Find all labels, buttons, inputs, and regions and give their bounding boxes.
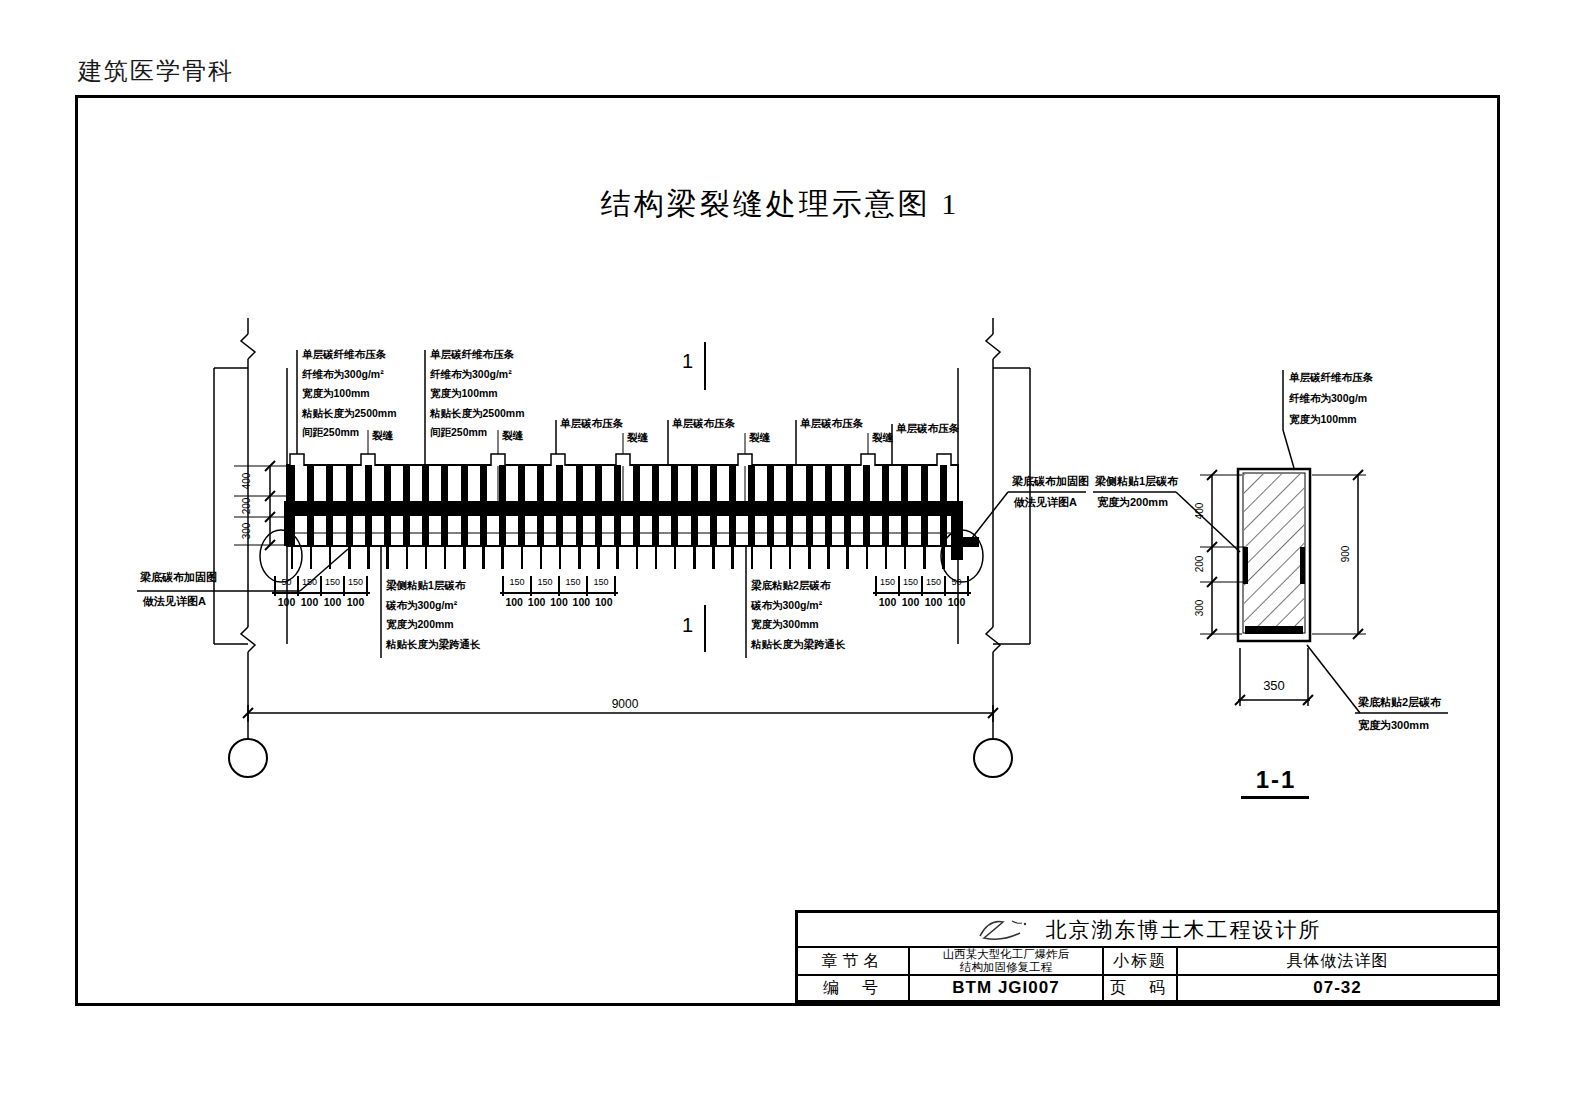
note-line: 粘贴长度为梁跨通长 (751, 635, 846, 655)
strip-tail-tick (616, 546, 619, 569)
section-bottom-note-line1: 梁底粘贴2层碳布 (1358, 695, 1441, 710)
strip-label-3: 单层碳布压条 (800, 417, 863, 431)
dim-value-bottom: 100 (321, 596, 344, 608)
note-line: 纤维布为300g/m² (430, 365, 525, 385)
subtitle-value: 具体做法详图 (1178, 948, 1497, 974)
page-value: 07-32 (1178, 976, 1497, 1000)
strip-tail-tick (751, 546, 754, 569)
note-line: 碳布为300g/m² (751, 596, 846, 616)
dim-group-3: 15015015050100100100100 (876, 576, 968, 618)
section-bottom-cloth (1245, 626, 1303, 634)
strip-tail-tick (923, 546, 926, 569)
strip-tail-tick (406, 546, 409, 569)
strip-tail-tick (808, 546, 811, 569)
dim-line (500, 592, 618, 594)
strip-tail-tick (789, 546, 792, 569)
elev-dim-span: 9000 (595, 697, 655, 711)
strip-label-4: 单层碳布压条 (896, 422, 959, 436)
strip-tail-tick (291, 546, 294, 569)
strip-tail-tick (674, 546, 677, 569)
strip-tail-tick (501, 546, 504, 569)
section-dim-350: 350 (1244, 678, 1304, 693)
detail-callout-right-line1: 梁底碳布加固图 (1012, 474, 1089, 489)
dim-value-bottom: 100 (298, 596, 321, 608)
note-line: 宽度为100mm (302, 384, 397, 404)
detail-callout-left-line2: 做法见详图A (143, 594, 206, 609)
dim-value-bottom: 100 (570, 596, 592, 608)
note-line: 粘贴长度为梁跨通长 (386, 635, 481, 655)
strip-tail-tick (444, 546, 447, 569)
side-callout-line2: 宽度为200mm (1097, 495, 1168, 510)
dim-value-bottom: 100 (503, 596, 525, 608)
strip-tail-tick (521, 546, 524, 569)
section-cut-label-top: 1 (682, 350, 693, 373)
strip-tail-tick (731, 546, 734, 569)
crack-label-3: 裂缝 (627, 431, 648, 445)
dim-value-bottom: 100 (548, 596, 570, 608)
section-dim-400: 400 (1194, 498, 1206, 524)
dim-value-top: 150 (298, 577, 321, 587)
page-label: 页 码 (1104, 976, 1178, 1000)
dim-value-top: 150 (559, 577, 587, 587)
elev-dim-200: 200 (241, 493, 253, 519)
title-block-row2: 章节名 山西某大型化工厂爆炸后 结构加固修复工程 小标题 具体做法详图 (798, 948, 1497, 976)
strip-label-2: 单层碳布压条 (672, 417, 735, 431)
note-line: 宽度为100mm (430, 384, 525, 404)
section-bottom-note-line2: 宽度为300mm (1358, 718, 1429, 733)
strip-tail-tick (597, 546, 600, 569)
note-line: 宽度为300mm (751, 615, 846, 635)
strip-tail-tick (866, 546, 869, 569)
section-side-cloth-left (1243, 547, 1248, 584)
note-line: 粘贴长度为2500mm (302, 404, 397, 424)
section-cut-label-bottom: 1 (682, 614, 693, 637)
dim-group-1: 50150150150100100100100 (275, 576, 367, 618)
strip-note-left: 单层碳纤维布压条纤维布为300g/m²宽度为100mm粘贴长度为2500mm间距… (302, 345, 397, 443)
dim-value-bottom: 100 (275, 596, 298, 608)
dim-value-top: 150 (899, 577, 922, 587)
strip-tail-tick (329, 546, 332, 569)
strip-tail-tick (827, 546, 830, 569)
section-hatch (1244, 474, 1304, 632)
beam-end-anchor-left (284, 501, 294, 546)
title-block: 北京渤东博土木工程设计所 章节名 山西某大型化工厂爆炸后 结构加固修复工程 小标… (795, 910, 1500, 1003)
strip-tail-tick (386, 546, 389, 569)
strip-tail-tick (348, 546, 351, 569)
detail-callout-right-line2: 做法见详图A (1014, 495, 1077, 510)
crack-label-5: 裂缝 (872, 431, 893, 445)
strip-tail-tick (425, 546, 428, 569)
strip-tail-tick (770, 546, 773, 569)
dim-value-bottom: 100 (899, 596, 922, 608)
crack-label-2: 裂缝 (502, 429, 523, 443)
strip-tail-tick (482, 546, 485, 569)
beam-end-anchor-right-foot (951, 537, 979, 547)
beam-end-anchor-right (951, 501, 963, 560)
section-dim-200: 200 (1194, 551, 1206, 577)
section-title: 1-1 (1243, 766, 1309, 794)
title-block-row3: 编 号 BTM JGI007 页 码 07-32 (798, 976, 1497, 1000)
note-line: 碳布为300g/m² (386, 596, 481, 616)
strip-tail-tick (310, 546, 313, 569)
strip-tail-tick (559, 546, 562, 569)
dim-value-bottom: 100 (344, 596, 367, 608)
crack-label-4: 裂缝 (749, 431, 770, 445)
strip-tail-tick (712, 546, 715, 569)
dim-value-top: 50 (275, 577, 298, 587)
dim-value-top: 150 (531, 577, 559, 587)
title-block-company-row: 北京渤东博土木工程设计所 (798, 913, 1497, 948)
strip-tail-tick (846, 546, 849, 569)
company-logo-icon (974, 915, 1032, 945)
note-line: 纤维布为300g/m² (302, 365, 397, 385)
chapter-label: 章节名 (798, 948, 910, 974)
strip-tail-tick (693, 546, 696, 569)
strip-tail-tick (885, 546, 888, 569)
project-line2: 结构加固修复工程 (960, 961, 1052, 974)
note-line: 梁底粘贴2层碳布 (751, 576, 846, 596)
strip-tail-tick (578, 546, 581, 569)
note-line: 单层碳纤维布压条 (1289, 367, 1373, 388)
drawing-sheet: 建筑医学骨科 结构梁裂缝处理示意图 1 (0, 0, 1571, 1098)
dim-value-bottom: 100 (922, 596, 945, 608)
detail-callout-left-line1: 梁底碳布加固图 (140, 570, 217, 585)
dim-value-top: 50 (945, 577, 968, 587)
dim-value-bottom: 100 (593, 596, 615, 608)
side-callout-line1: 梁侧粘贴1层碳布 (1095, 474, 1178, 489)
note-line: 纤维布为300g/m (1289, 388, 1373, 409)
strip-tail-tick (367, 546, 370, 569)
dim-value-bottom: 100 (945, 596, 968, 608)
note-line: 单层碳纤维布压条 (430, 345, 525, 365)
dim-line (873, 592, 971, 594)
dim-value-top: 150 (344, 577, 367, 587)
section-title-rule (1241, 796, 1309, 799)
section-dim-900: 900 (1340, 541, 1352, 567)
strip-tail-tick (655, 546, 658, 569)
dim-value-top: 150 (587, 577, 615, 587)
project-name: 山西某大型化工厂爆炸后 结构加固修复工程 (910, 948, 1104, 974)
dim-value-top: 150 (321, 577, 344, 587)
note-line: 单层碳纤维布压条 (302, 345, 397, 365)
subtitle-label: 小标题 (1104, 948, 1178, 974)
dim-value-top: 150 (503, 577, 531, 587)
bottom-cloth-note: 梁底粘贴2层碳布碳布为300g/m²宽度为300mm粘贴长度为梁跨通长 (751, 576, 846, 654)
section-dim-300: 300 (1194, 595, 1206, 621)
company-name: 北京渤东博土木工程设计所 (1046, 916, 1322, 944)
number-label: 编 号 (798, 976, 910, 1000)
strip-tail-tick (540, 546, 543, 569)
section-side-cloth-right (1300, 547, 1305, 584)
dim-value-top: 150 (876, 577, 899, 587)
note-line: 宽度为200mm (386, 615, 481, 635)
beam-side-cloth-band (287, 501, 958, 516)
note-line: 粘贴长度为2500mm (430, 404, 525, 424)
dim-group-2: 150150150150100100100100100 (503, 576, 615, 618)
note-line: 梁侧粘贴1层碳布 (386, 576, 481, 596)
strip-tail-tick (904, 546, 907, 569)
project-line1: 山西某大型化工厂爆炸后 (943, 948, 1070, 961)
section-top-note: 单层碳纤维布压条纤维布为300g/m宽度为100mm (1289, 367, 1373, 430)
number-value: BTM JGI007 (910, 976, 1104, 1000)
strip-tail-tick (463, 546, 466, 569)
strip-note-right: 单层碳纤维布压条纤维布为300g/m²宽度为100mm粘贴长度为2500mm间距… (430, 345, 525, 443)
strip-label-1: 单层碳布压条 (560, 417, 623, 431)
note-line: 宽度为100mm (1289, 409, 1373, 430)
strip-tail-tick (942, 546, 945, 569)
strip-tail-tick (636, 546, 639, 569)
crack-label-1: 裂缝 (372, 429, 393, 443)
side-cloth-note: 梁侧粘贴1层碳布碳布为300g/m²宽度为200mm粘贴长度为梁跨通长 (386, 576, 481, 654)
dim-value-top: 150 (922, 577, 945, 587)
elev-dim-400: 400 (241, 468, 253, 494)
dim-line (272, 592, 370, 594)
dim-value-bottom: 100 (876, 596, 899, 608)
elev-dim-300: 300 (241, 518, 253, 544)
dim-value-bottom: 100 (525, 596, 547, 608)
